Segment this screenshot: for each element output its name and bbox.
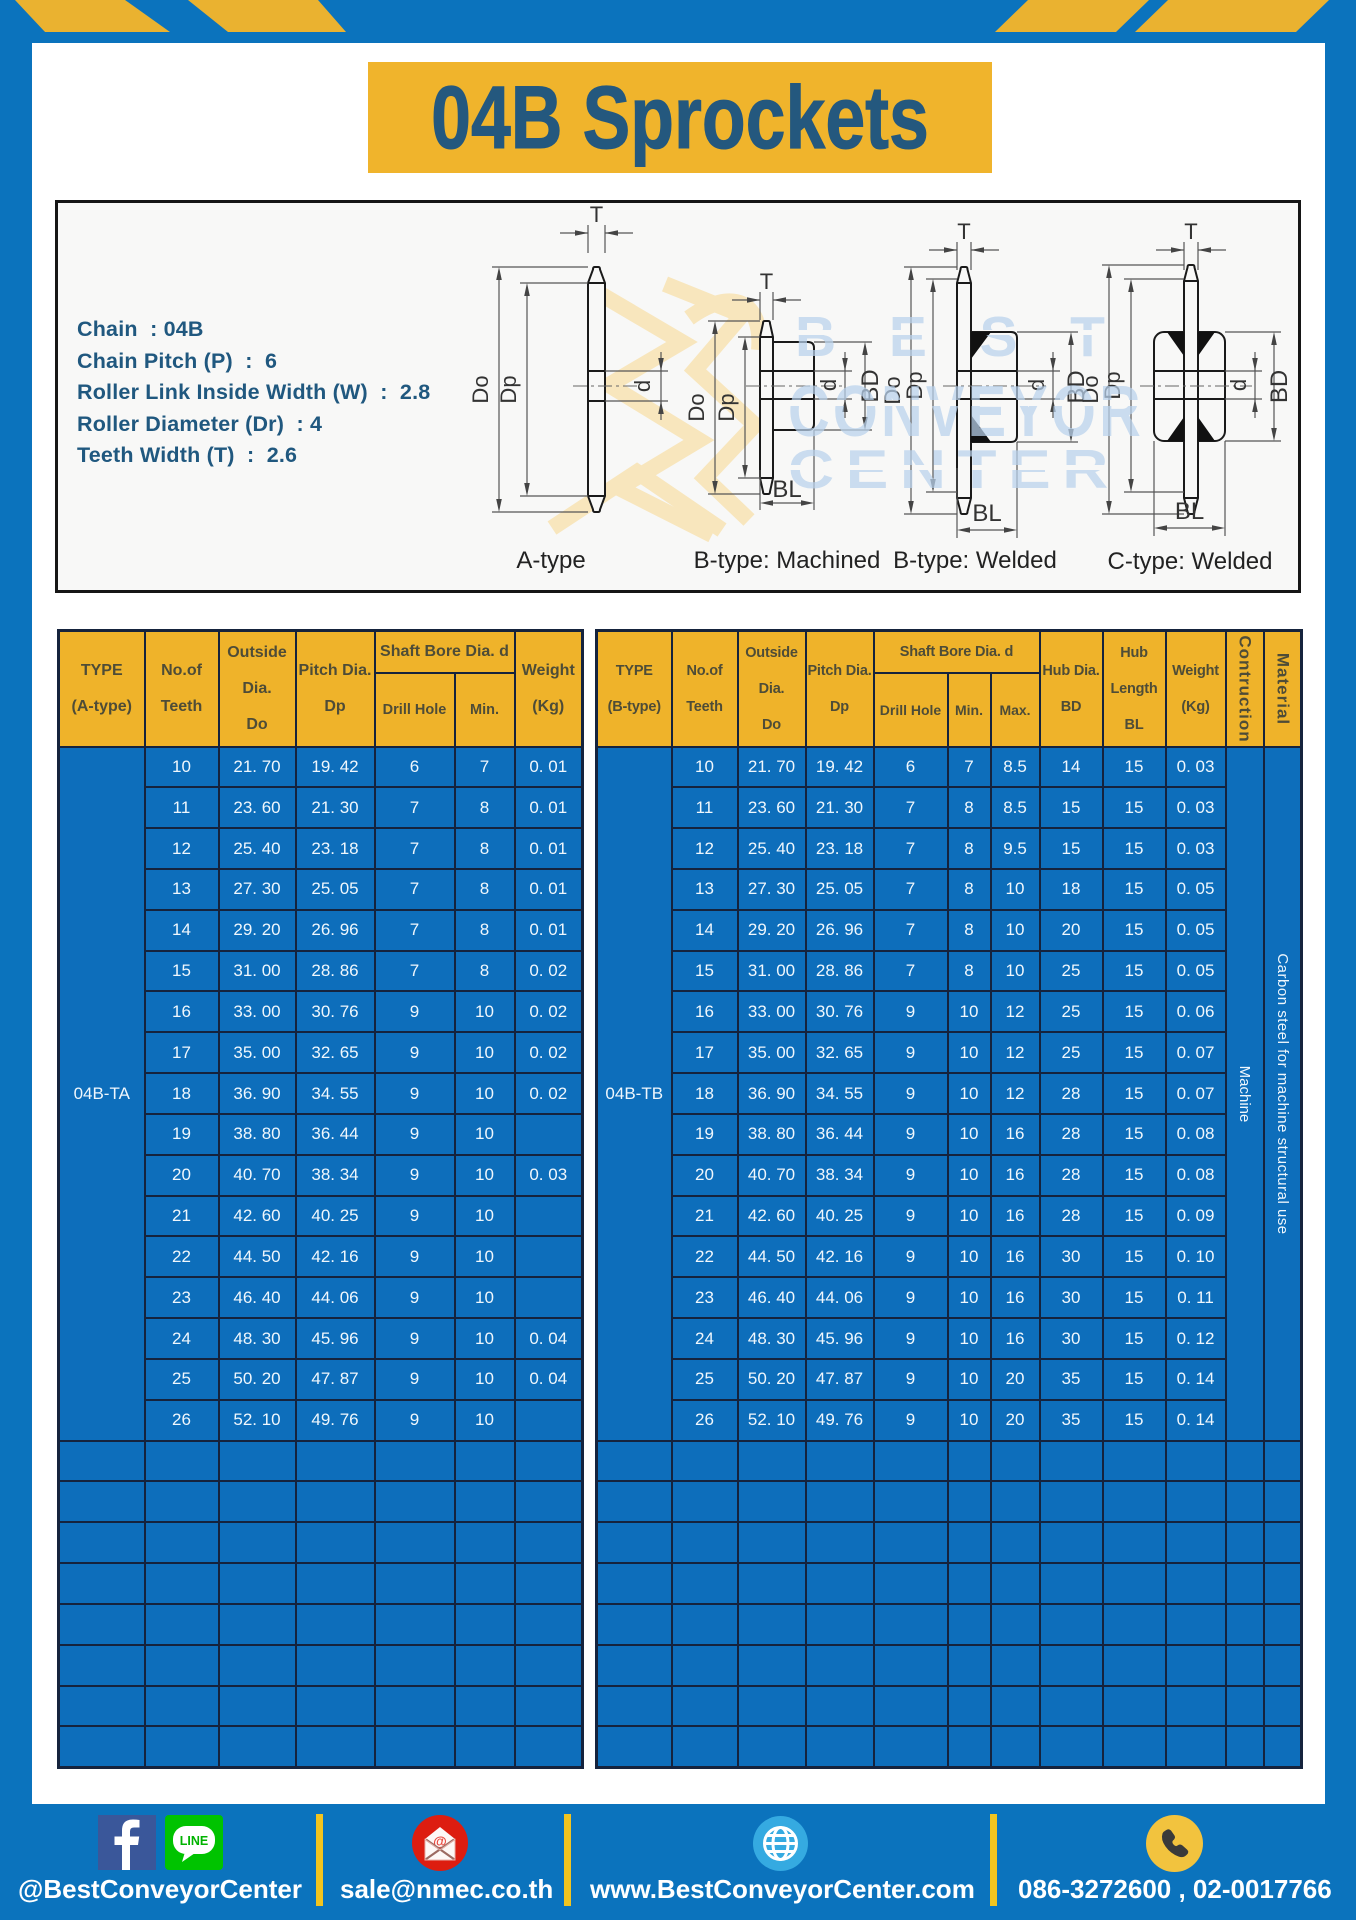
svg-text:T: T: [1184, 219, 1197, 244]
svg-text:BL: BL: [972, 500, 1001, 527]
svg-text:LINE: LINE: [180, 1834, 208, 1848]
svg-text:T: T: [957, 219, 970, 244]
svg-text:d: d: [630, 380, 655, 392]
svg-text:B-type: Machined: B-type: Machined: [694, 547, 881, 574]
svg-text:BL: BL: [1175, 498, 1204, 525]
svg-text:B-type: Welded: B-type: Welded: [893, 547, 1057, 574]
svg-text:CENTER: CENTER: [788, 438, 1120, 500]
svg-text:Do: Do: [468, 375, 493, 403]
svg-text:d: d: [1226, 379, 1251, 391]
svg-text:T: T: [590, 203, 603, 227]
svg-text:Do: Do: [684, 393, 709, 421]
svg-text:BD: BD: [1266, 370, 1293, 403]
svg-text:Dp: Dp: [714, 393, 739, 421]
svg-text:T: T: [760, 269, 773, 294]
svg-text:A-type: A-type: [516, 547, 585, 574]
svg-text:C-type: Welded: C-type: Welded: [1108, 548, 1273, 575]
svg-text:Dp: Dp: [496, 375, 521, 403]
